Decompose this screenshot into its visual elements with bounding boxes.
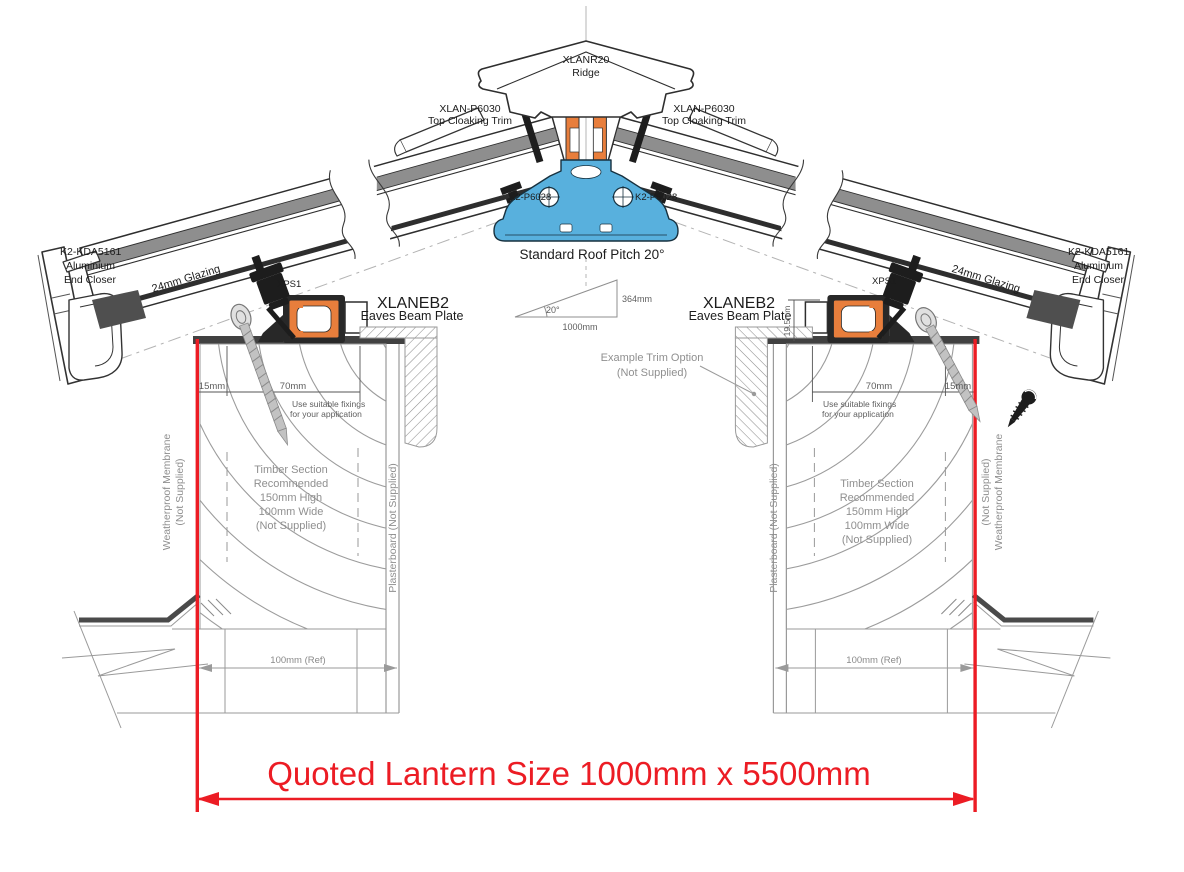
plasterboard-label-right: Plasterboard (Not Supplied) [768, 463, 780, 593]
ridge-name-label: Ridge [572, 67, 600, 79]
wall-ref-label-right: 100mm (Ref) [846, 655, 901, 666]
end-closer-line3-right: End Closer [1072, 274, 1124, 286]
fixing-note-line1-right: Use suitable fixings [823, 399, 896, 409]
quoted-dimension [197, 792, 975, 806]
cloaking-trim-name-right: Top Cloaking Trim [662, 115, 746, 127]
svg-text:150mm High: 150mm High [846, 506, 908, 518]
plasterboard-label-left: Plasterboard (Not Supplied) [387, 463, 399, 593]
screw-icon [1002, 387, 1040, 432]
pitch-triangle [515, 280, 617, 317]
end-closer-line2-left: Aluminium [66, 260, 115, 272]
membrane-label-right-2: (Not Supplied) [980, 458, 992, 525]
fixing-note-line1-left: Use suitable fixings [292, 399, 365, 409]
membrane-label-right-1: Weatherproof Membrane [993, 434, 1005, 551]
pitch-angle-label: 20° [546, 305, 560, 315]
svg-text:Recommended: Recommended [840, 492, 915, 504]
eaves-beam-name-right: Eaves Beam Plate [689, 309, 792, 323]
fixing-note-line2-right: for your application [822, 409, 894, 419]
beam-seat-label-right: 70mm [866, 381, 892, 392]
end-closer-line2-right: Aluminium [1074, 260, 1123, 272]
beam-seat-label-left: 70mm [280, 381, 306, 392]
trim-option-line2: (Not Supplied) [617, 367, 687, 379]
svg-text:100mm Wide: 100mm Wide [845, 520, 910, 532]
membrane-label-left-2: (Not Supplied) [174, 458, 186, 525]
ridge-part-label: XLANR20 [563, 54, 610, 66]
ridge-fixing-label-right: K2-P6028 [635, 192, 677, 203]
svg-text:Recommended: Recommended [254, 478, 329, 490]
gasket-label-left: XPS1 [277, 279, 301, 290]
end-closer-part-right: K2-KDA5161 [1068, 246, 1129, 258]
cloaking-trim-name-left: Top Cloaking Trim [428, 115, 512, 127]
trim-option-leader-dot [752, 392, 756, 396]
svg-text:Timber Section: Timber Section [254, 464, 328, 476]
trim-option-line1: Example Trim Option [601, 352, 704, 364]
svg-text:150mm High: 150mm High [260, 492, 322, 504]
gasket-label-right: XPS1 [872, 276, 896, 287]
end-closer-part-left: K2-KDA5161 [60, 246, 121, 258]
roof-lantern-section-page: XLANR20 Ridge XLAN-P6030 Top Cloaking Tr… [0, 0, 1184, 872]
eaves-beam-name-left: Eaves Beam Plate [361, 309, 464, 323]
svg-text:Timber Section: Timber Section [840, 478, 914, 490]
ridge-fixing-label-left: K2-P6028 [509, 192, 551, 203]
svg-text:(Not Supplied): (Not Supplied) [842, 534, 912, 546]
beam-height-label: 19.5mm [782, 306, 792, 337]
technical-drawing: XLANR20 Ridge XLAN-P6030 Top Cloaking Tr… [0, 0, 1184, 872]
quoted-size-label: Quoted Lantern Size 1000mm x 5500mm [267, 755, 871, 792]
end-closer-line3-left: End Closer [64, 274, 116, 286]
svg-text:100mm Wide: 100mm Wide [259, 506, 324, 518]
membrane-label-left-1: Weatherproof Membrane [161, 434, 173, 551]
edge-offset-label-right: 15mm [945, 381, 971, 392]
cloaking-trim-part-right: XLAN-P6030 [673, 103, 734, 115]
timber-note-right: Timber Section Recommended 150mm High 10… [840, 478, 915, 546]
edge-offset-label-left: 15mm [199, 381, 225, 392]
cloaking-trim-part-left: XLAN-P6030 [439, 103, 500, 115]
fixing-note-line2-left: for your application [290, 409, 362, 419]
wall-ref-label-left: 100mm (Ref) [270, 655, 325, 666]
svg-text:(Not Supplied): (Not Supplied) [256, 520, 326, 532]
pitch-rise-label: 364mm [622, 294, 652, 304]
pitch-label: Standard Roof Pitch 20° [520, 247, 665, 262]
pitch-run-label: 1000mm [562, 322, 597, 332]
timber-note-left: Timber Section Recommended 150mm High 10… [254, 464, 329, 532]
